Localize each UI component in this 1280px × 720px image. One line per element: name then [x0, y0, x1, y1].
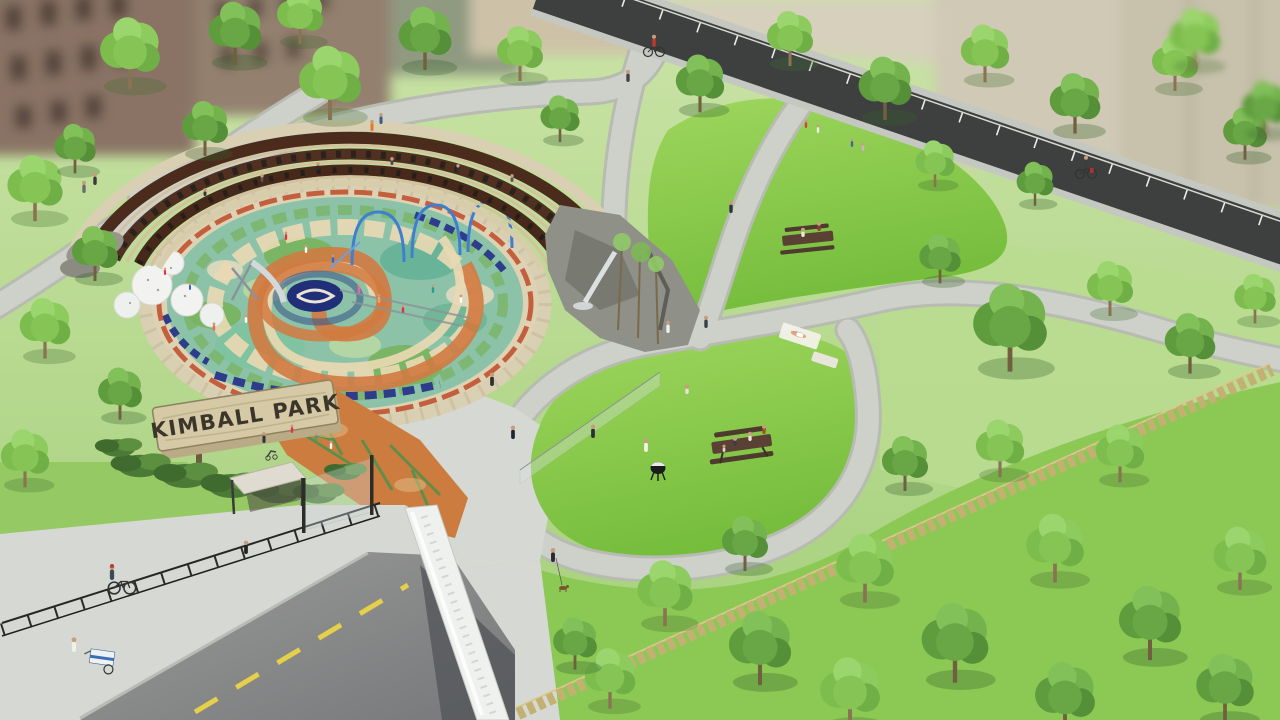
park-rendering: KIMBALL PARK — [0, 0, 1280, 720]
park-scene-svg: KIMBALL PARK — [0, 0, 1280, 720]
